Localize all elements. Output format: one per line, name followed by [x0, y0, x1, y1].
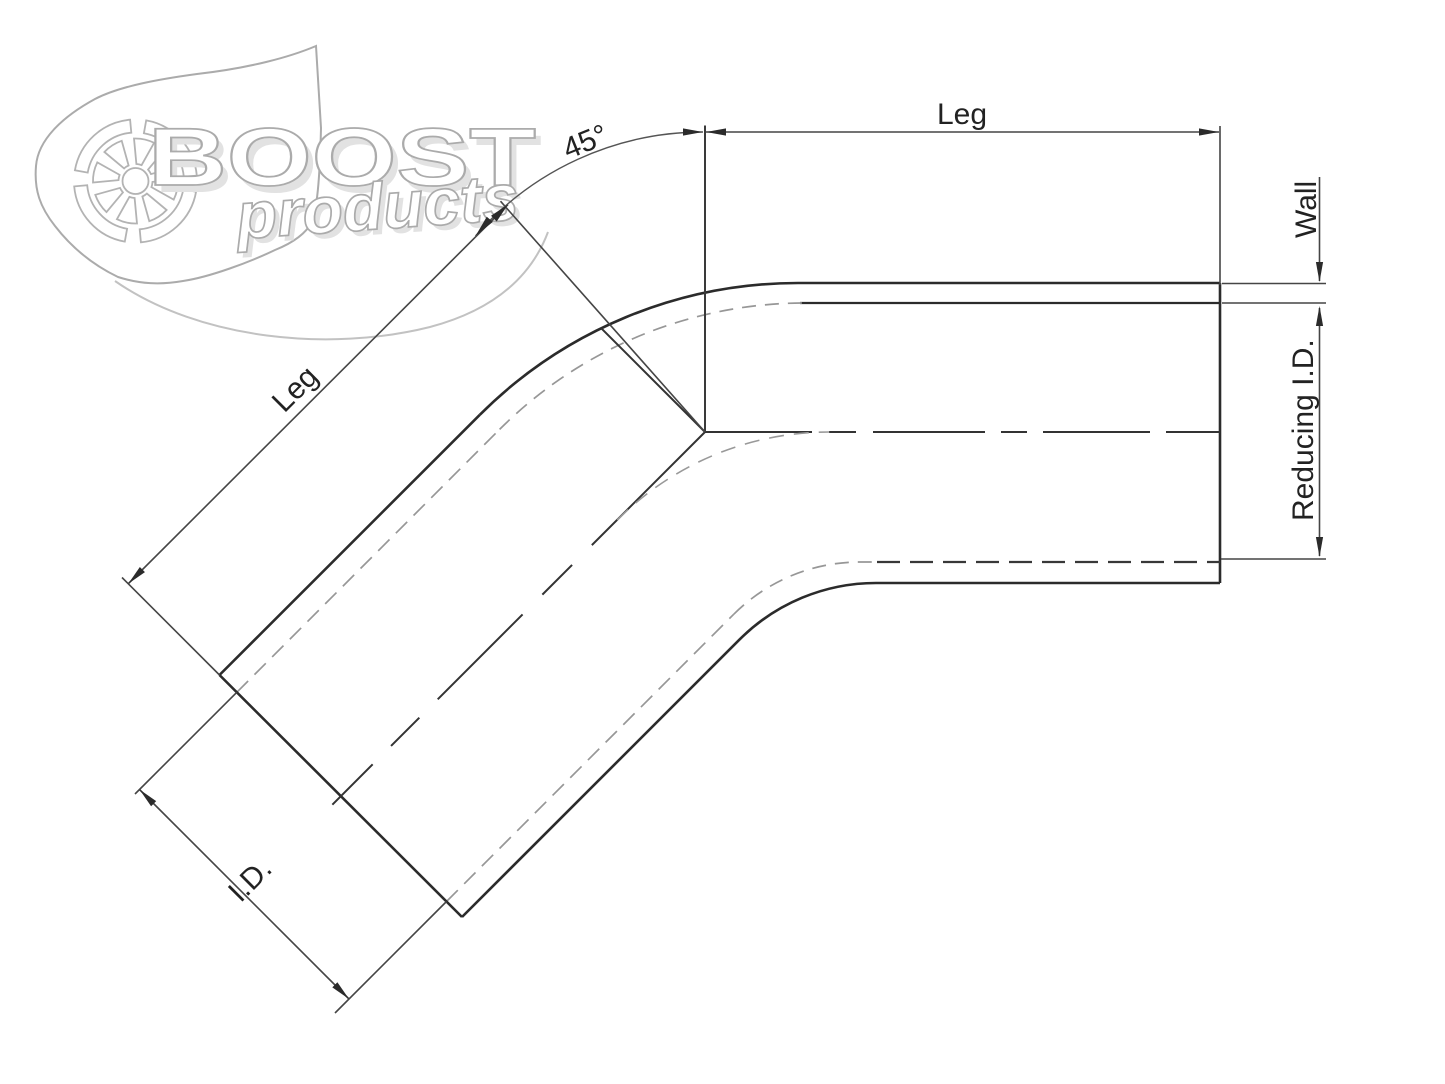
svg-text:Wall: Wall: [1290, 181, 1323, 238]
svg-text:Reducing I.D.: Reducing I.D.: [1287, 339, 1320, 521]
svg-text:Leg: Leg: [937, 98, 987, 131]
